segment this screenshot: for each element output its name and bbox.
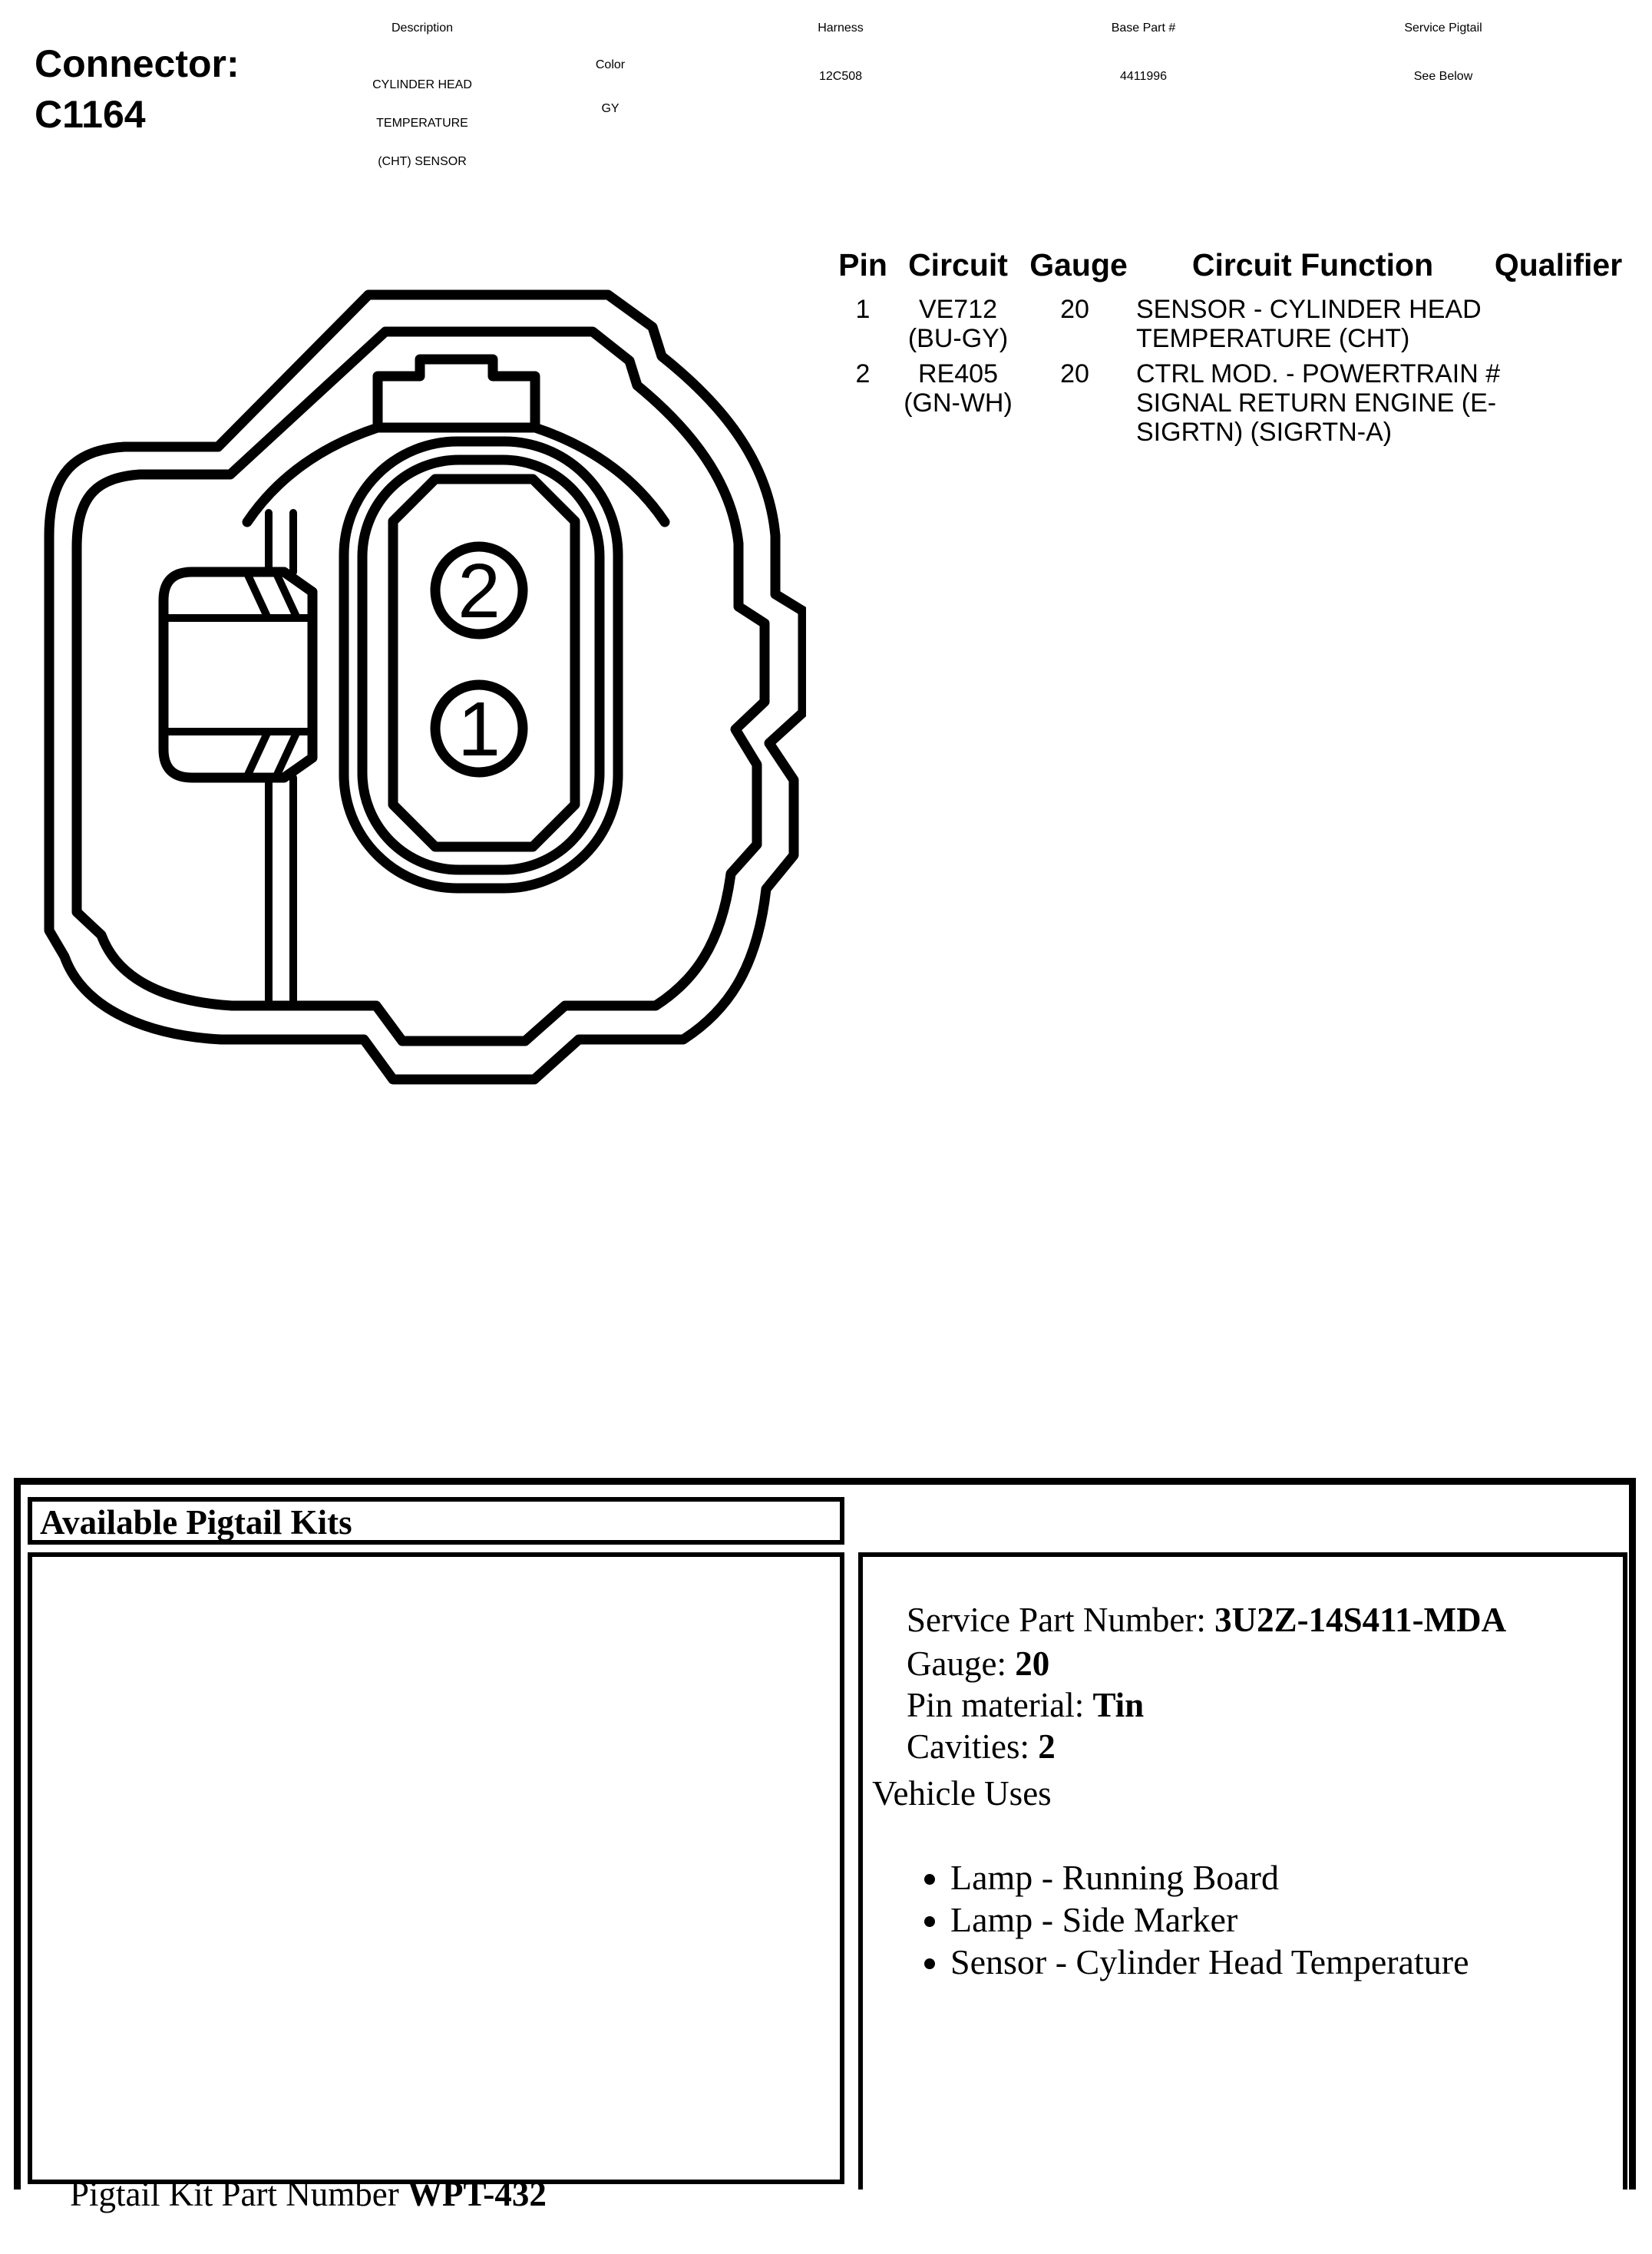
description-header: Description [303,21,541,35]
description-line: (CHT) SENSOR [276,143,568,181]
description-line: TEMPERATURE [276,104,568,143]
cavities-value: 2 [1038,1727,1056,1766]
keyway-cavity [393,479,575,847]
pigtail-kit-part-number-value: WPT-432 [408,2175,547,2213]
harness-value: 12C508 [768,70,914,84]
connector-id: C1164 [35,89,240,140]
available-pigtail-kits-title: Available Pigtail Kits [32,1502,840,1541]
circuit-function-cell: SENSOR - CYLINDER HEAD TEMPERATURE (CHT) [1136,295,1505,353]
circuit-cell: VE712 (BU-GY) [889,295,1027,353]
gauge-value: 20 [1044,359,1105,388]
circuit-function-col-header: Circuit Function [1167,247,1459,283]
vehicle-uses-list: Lamp - Running Board Lamp - Side Marker … [895,1856,1469,1983]
description-value: CYLINDER HEAD TEMPERATURE (CHT) SENSOR [276,66,568,181]
pin-number: 1 [840,295,886,324]
gauge-value: 20 [1044,295,1105,324]
circuit-id: VE712 [889,295,1027,324]
circuit-function-line: SIGRTN) (SIGRTN-A) [1136,418,1505,447]
pigtail-kit-part-number-line: Pigtail Kit Part Number WPT-432 [35,2134,547,2254]
circuit-cell: RE405 (GN-WH) [889,359,1027,418]
connector-title: Connector: C1164 [35,38,240,140]
pin-material-value: Tin [1092,1686,1144,1724]
circuit-function-line: SIGNAL RETURN ENGINE (E- [1136,388,1505,418]
circuit-function-cell: CTRL MOD. - POWERTRAIN # SIGNAL RETURN E… [1136,359,1505,447]
connector-spec-page: Connector: C1164 Description CYLINDER HE… [0,0,1652,2190]
connector-label: Connector: [35,38,240,89]
available-pigtail-kits-box: Available Pigtail Kits [28,1497,844,1545]
vehicle-use-item: Sensor - Cylinder Head Temperature [950,1941,1469,1983]
pigtail-kit-box [28,1552,844,2184]
color-value: GY [557,102,664,116]
vehicle-use-item: Lamp - Running Board [950,1856,1469,1899]
pin-number: 2 [840,359,886,388]
circuit-color-code: (BU-GY) [889,324,1027,353]
pigtail-kit-part-number-label: Pigtail Kit Part Number [70,2175,408,2213]
circuit-color-code: (GN-WH) [889,388,1027,418]
cavities-label: Cavities: [907,1727,1038,1766]
description-line: CYLINDER HEAD [276,66,568,104]
base-part-value: 4411996 [1061,70,1226,84]
circuit-col-header: Circuit [889,247,1027,283]
cavity-1-label: 1 [458,686,501,772]
cavity-2-label: 2 [458,548,501,634]
vehicle-uses-heading: Vehicle Uses [872,1773,1052,1813]
vehicle-use-item: Lamp - Side Marker [950,1899,1469,1941]
circuit-function-line: TEMPERATURE (CHT) [1136,324,1505,353]
base-part-header: Base Part # [1061,21,1226,35]
circuit-id: RE405 [889,359,1027,388]
harness-header: Harness [768,21,914,35]
connector-face-diagram: 2 1 [38,283,806,1085]
service-pigtail-header: Service Pigtail [1347,21,1539,35]
gauge-col-header: Gauge [1017,247,1140,283]
service-pigtail-value: See Below [1347,70,1539,84]
circuit-function-line: SENSOR - CYLINDER HEAD [1136,295,1505,324]
qualifier-col-header: Qualifier [1482,247,1635,283]
color-header: Color [557,58,664,72]
service-part-number-value: 3U2Z-14S411-MDA [1214,1601,1506,1639]
circuit-function-line: CTRL MOD. - POWERTRAIN # [1136,359,1505,388]
